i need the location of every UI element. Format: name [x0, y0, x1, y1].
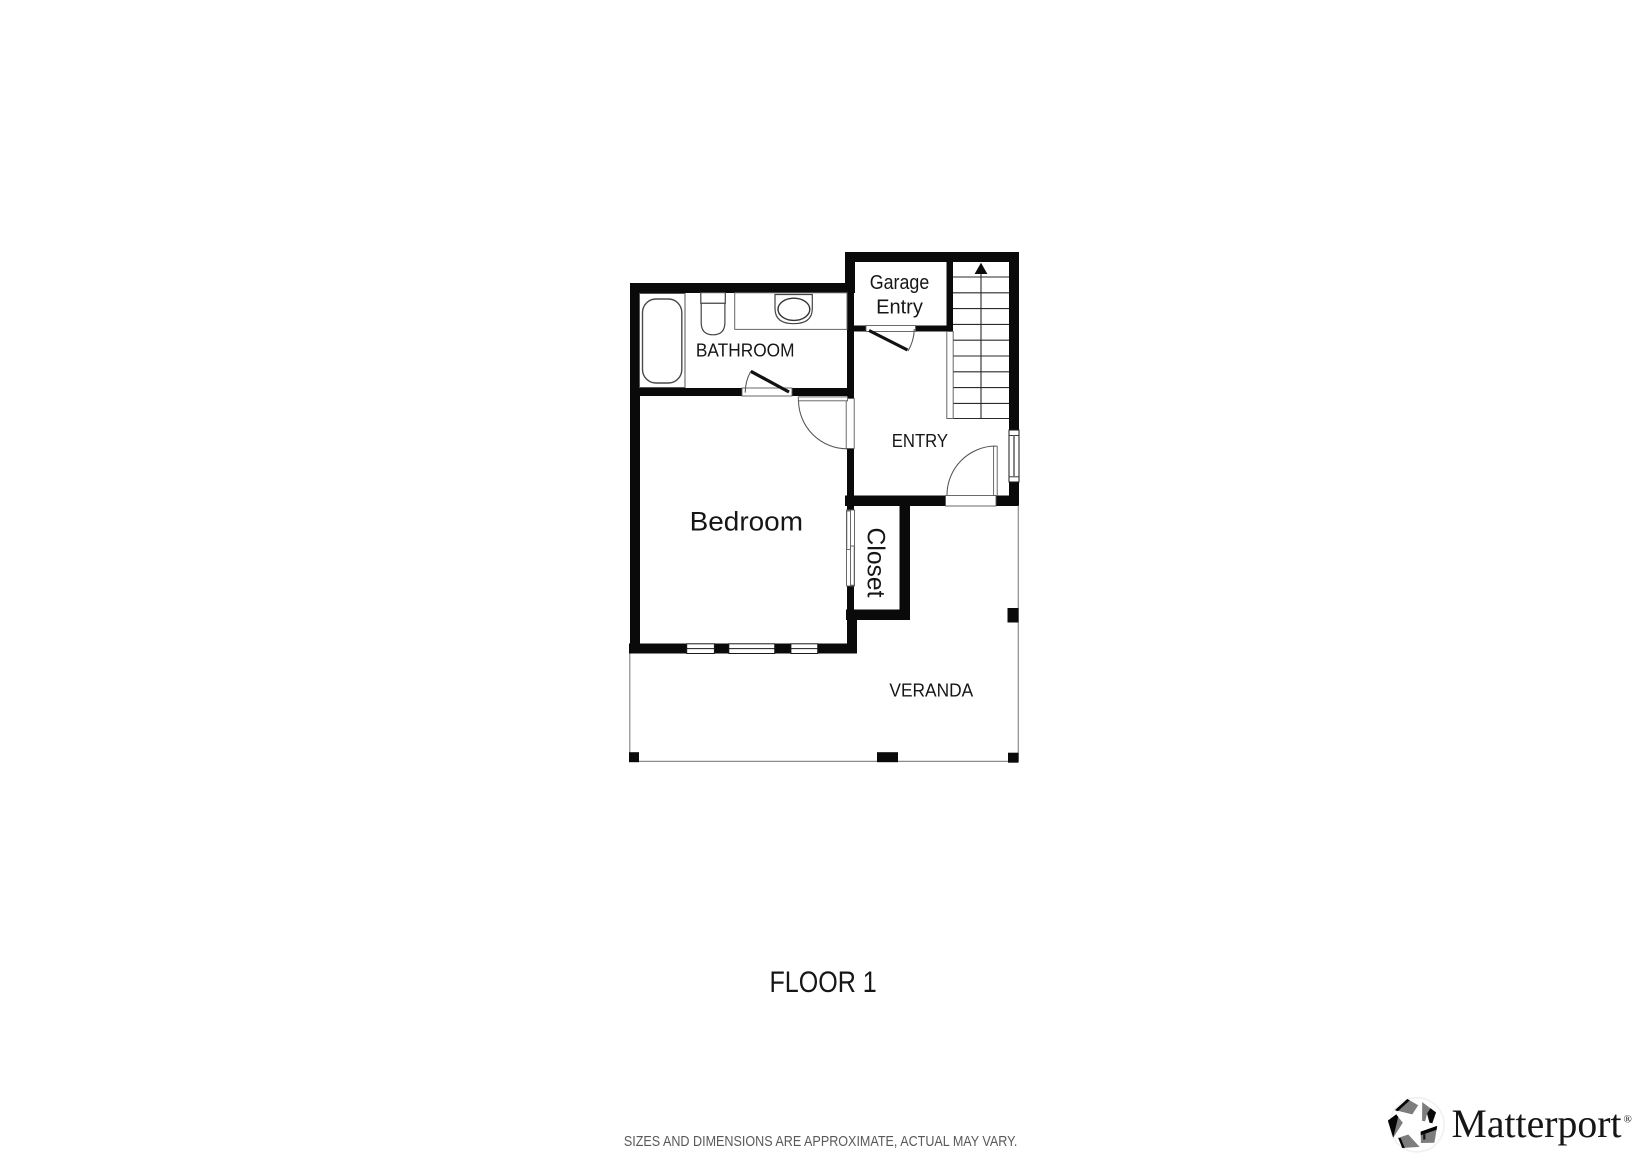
svg-text:Matterport: Matterport [1452, 1101, 1622, 1146]
svg-text:SIZES AND DIMENSIONS ARE APPRO: SIZES AND DIMENSIONS ARE APPROXIMATE, AC… [624, 1134, 1018, 1150]
svg-text:Bedroom: Bedroom [690, 507, 803, 537]
svg-text:Closet: Closet [862, 528, 890, 598]
svg-text:Garage: Garage [870, 272, 930, 294]
svg-text:BATHROOM: BATHROOM [696, 339, 795, 360]
svg-text:ENTRY: ENTRY [892, 430, 948, 451]
svg-text:®: ® [1624, 1114, 1632, 1126]
svg-text:VERANDA: VERANDA [889, 679, 973, 700]
svg-text:Entry: Entry [876, 297, 923, 319]
svg-text:FLOOR 1: FLOOR 1 [769, 966, 876, 999]
